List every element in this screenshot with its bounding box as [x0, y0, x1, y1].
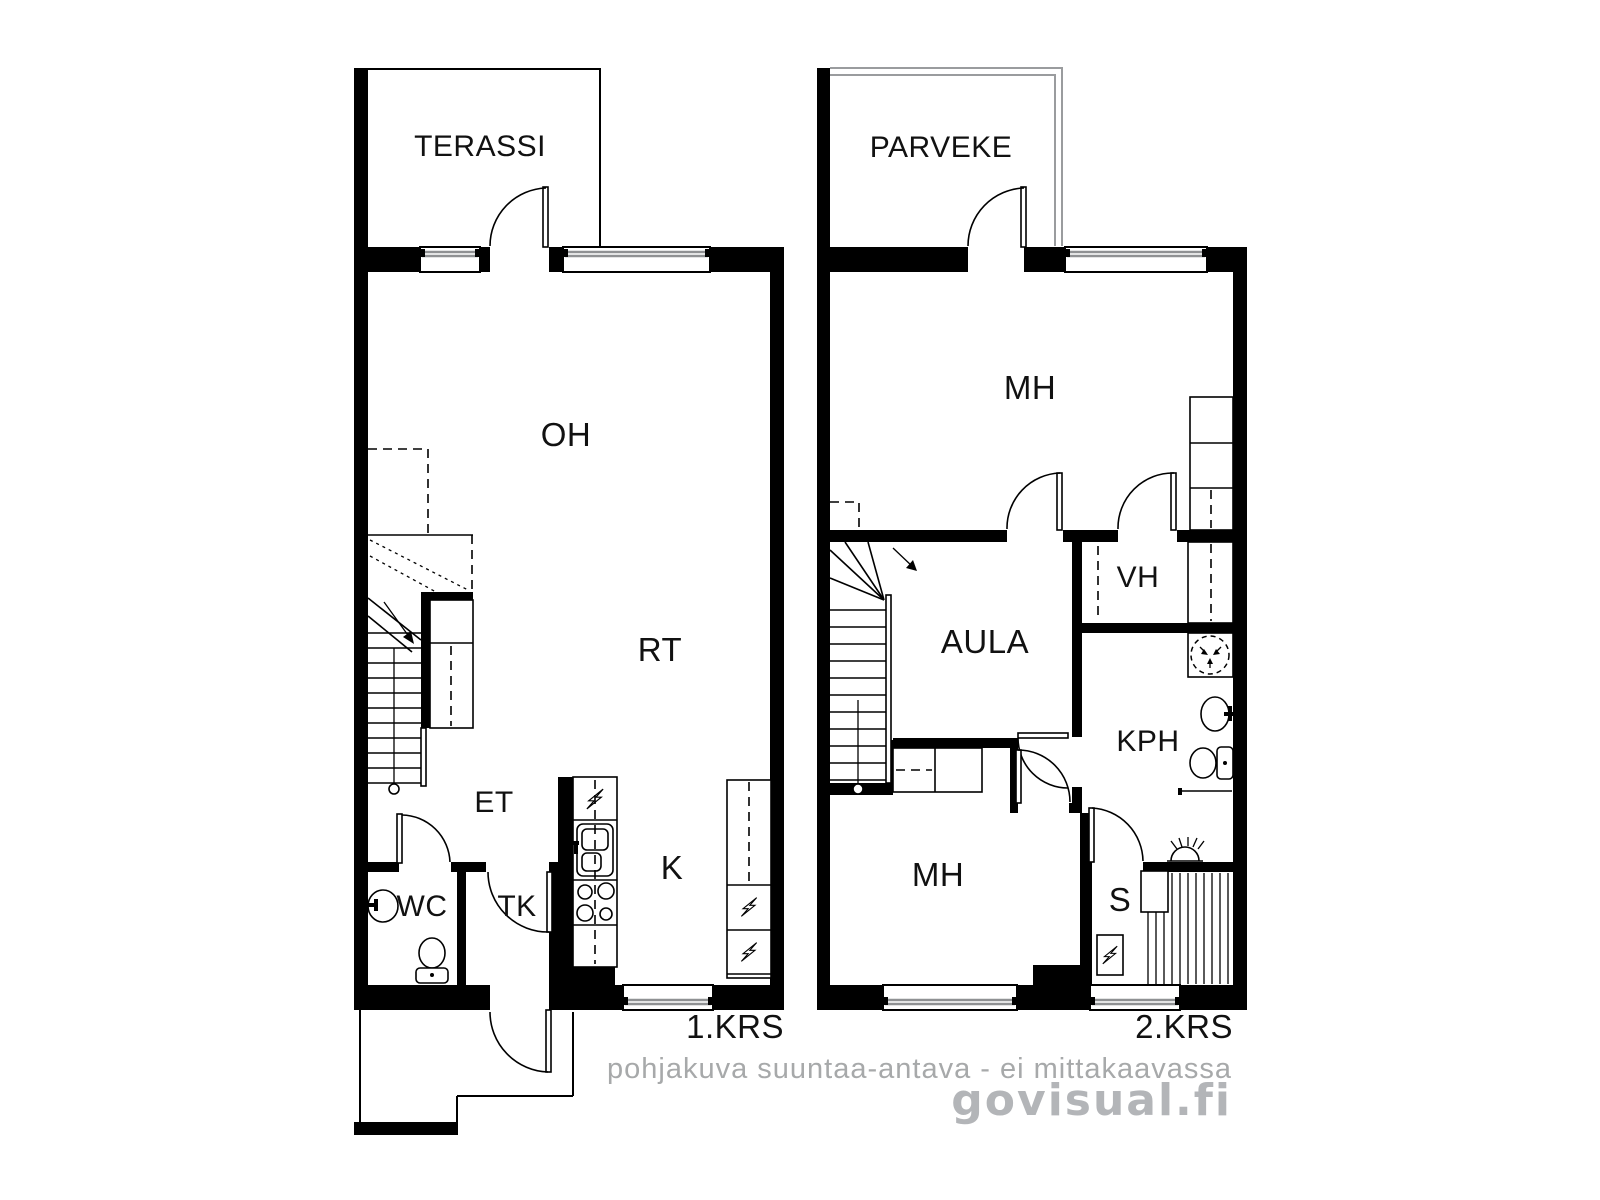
- balcony-door: [968, 187, 1026, 247]
- floor-plan-2krs: PARVEKE MH VH AULA KPH MH S 2.KRS: [817, 68, 1247, 1045]
- sauna-benches: [1141, 871, 1228, 984]
- tall-cabinet: [727, 780, 771, 978]
- kph-door: [1018, 733, 1068, 788]
- stairs-direction-arrow-icon: [384, 602, 414, 644]
- window: [1090, 985, 1180, 1010]
- room-label-vh: VH: [1117, 561, 1160, 594]
- floor-label-2krs: 2.KRS: [1135, 1008, 1233, 1045]
- room-label-rt: RT: [638, 631, 682, 668]
- room-label-tk: TK: [497, 890, 536, 923]
- window: [563, 247, 710, 272]
- room-label-oh: OH: [541, 416, 592, 453]
- washing-machine-icon: [1188, 633, 1233, 677]
- shower-icon: [1167, 837, 1204, 861]
- room-label-et: ET: [474, 786, 513, 819]
- bedroom-door: [1118, 473, 1176, 530]
- floor-plan-page: TERASSI OH RT ET WC TK K 1.KRS: [0, 0, 1600, 1200]
- toilet-icon: [1190, 747, 1233, 779]
- bedroom-door: [1016, 750, 1070, 803]
- toilet-icon: [416, 938, 448, 983]
- stairs-direction-arrow-icon: [893, 548, 917, 571]
- bedroom-door: [1007, 473, 1062, 530]
- window: [883, 985, 1017, 1010]
- floor-plan-drawing: TERASSI OH RT ET WC TK K 1.KRS: [0, 0, 1600, 1200]
- room-label-kph: KPH: [1116, 725, 1179, 758]
- brand-logo: govisual.fi: [951, 1075, 1232, 1126]
- sink-icon: [368, 890, 398, 922]
- bedroom-cabinet: [1190, 397, 1233, 530]
- room-label-terassi: TERASSI: [414, 130, 546, 163]
- room-label-mh-top: MH: [1004, 369, 1056, 406]
- entrance-porch: [354, 1010, 573, 1135]
- window: [1065, 247, 1207, 272]
- room-label-k: K: [661, 849, 684, 886]
- bedroom-cabinet: [893, 748, 982, 792]
- room-label-s: S: [1109, 881, 1132, 918]
- kitchen: [558, 777, 771, 1010]
- floor-label-1krs: 1.KRS: [686, 1008, 784, 1045]
- terrace-door: [490, 187, 548, 247]
- room-label-parveke: PARVEKE: [870, 131, 1012, 164]
- window: [420, 247, 480, 272]
- floor-plan-1krs: TERASSI OH RT ET WC TK K 1.KRS: [354, 68, 784, 1135]
- window: [623, 985, 713, 1010]
- tk-room: [488, 862, 558, 985]
- under-stair-storage: [368, 449, 473, 592]
- towel-rail-icon: [1178, 788, 1232, 795]
- sauna-door: [1089, 808, 1143, 862]
- entrance-door: [490, 1010, 551, 1072]
- footer: pohjakuva suuntaa-antava - ei mittakaava…: [607, 1053, 1232, 1126]
- hall-closet: [430, 600, 473, 728]
- room-label-mh-bottom: MH: [912, 856, 964, 893]
- room-label-aula: AULA: [941, 623, 1029, 660]
- sauna-stove-icon: [1097, 935, 1123, 975]
- sink-icon: [1201, 697, 1234, 731]
- room-label-wc: WC: [397, 890, 448, 923]
- wc-door: [397, 814, 450, 863]
